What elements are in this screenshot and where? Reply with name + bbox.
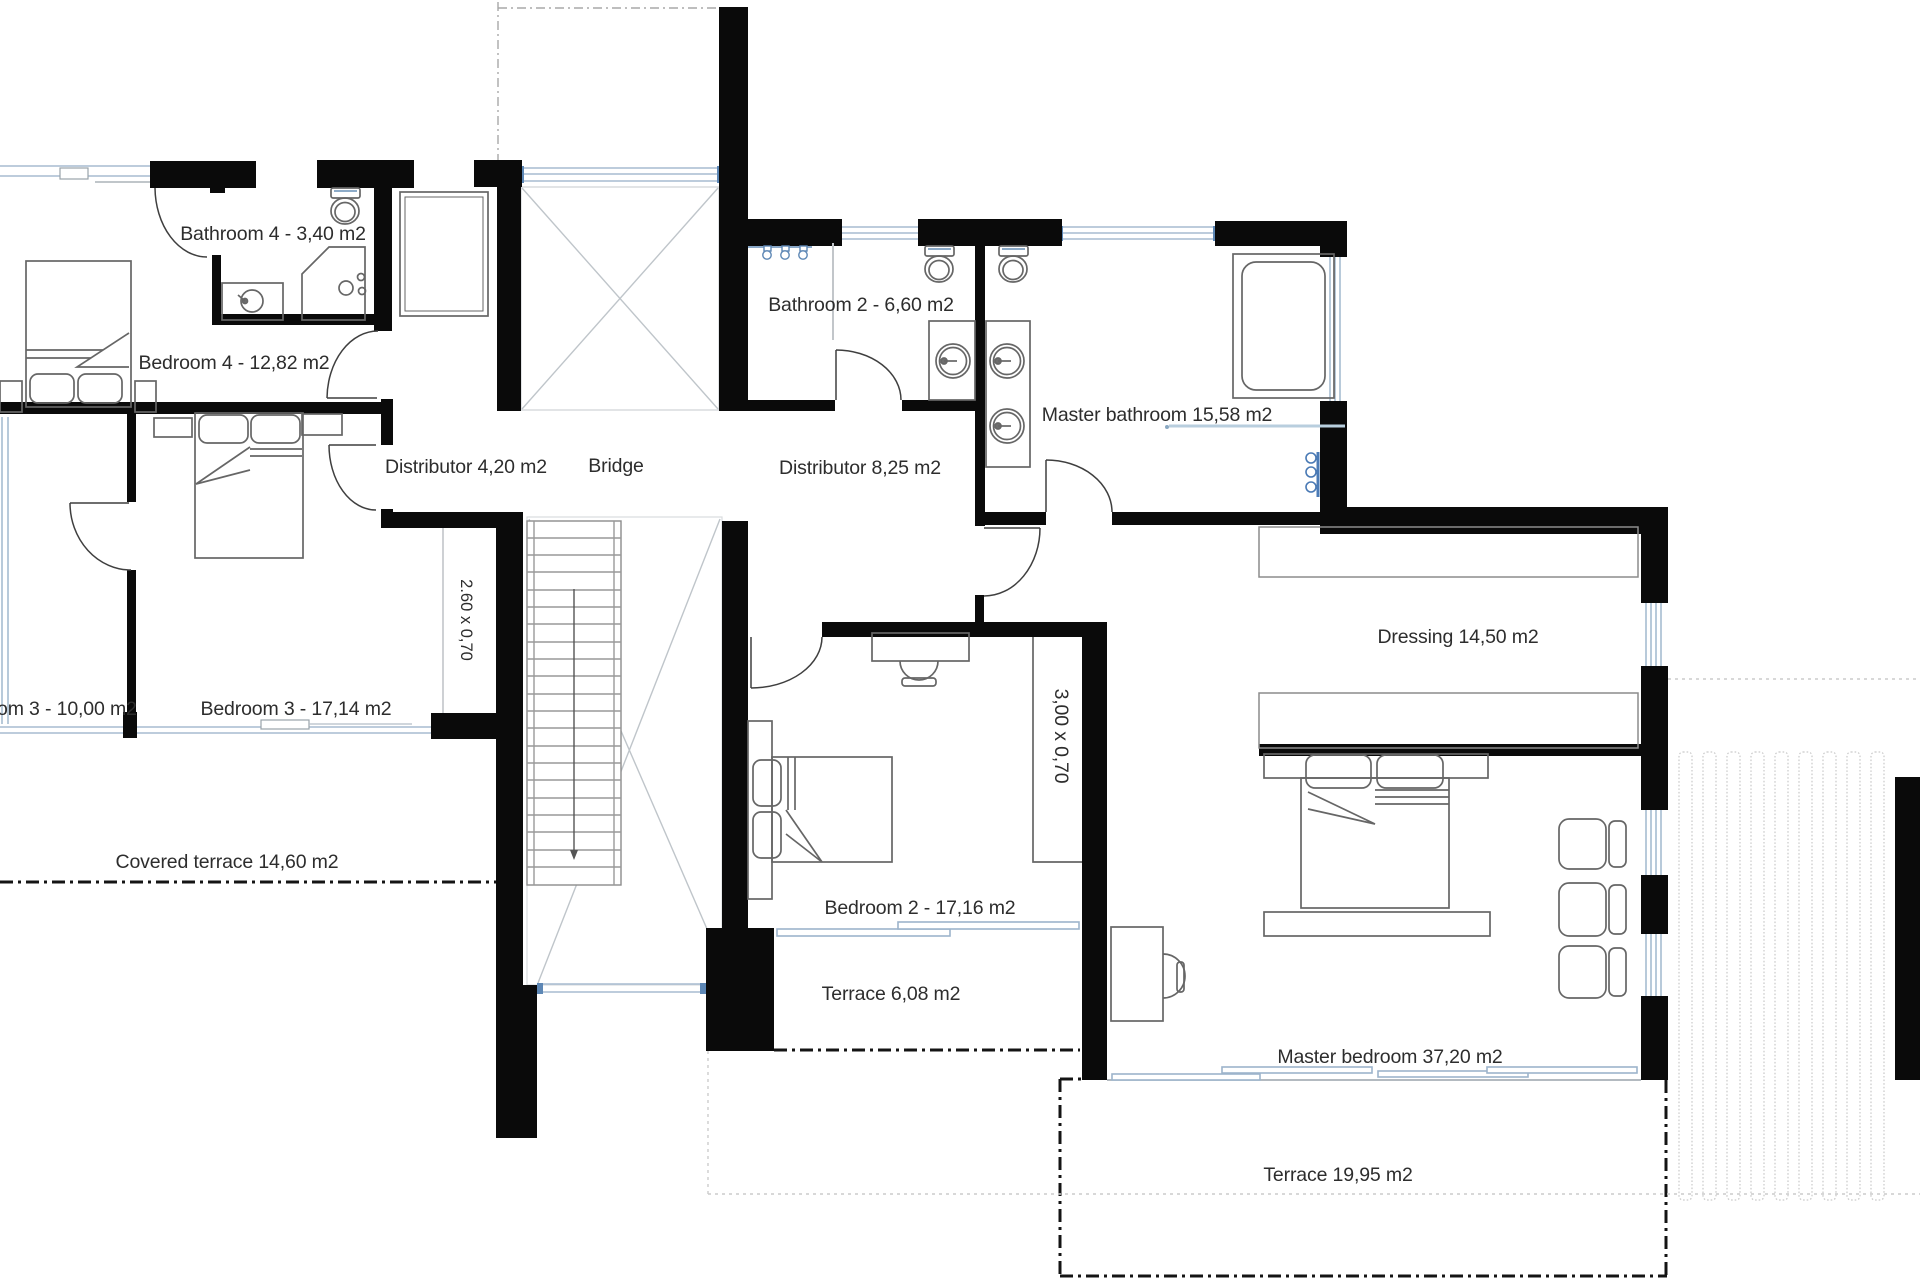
svg-text:om 3 - 10,00 m2: om 3 - 10,00 m2 [0,698,137,720]
svg-text:2.60 x 0,70: 2.60 x 0,70 [457,579,475,661]
svg-text:Bridge: Bridge [588,455,643,477]
svg-text:Distributor 8,25 m2: Distributor 8,25 m2 [779,457,941,479]
svg-text:Master bedroom 37,20 m2: Master bedroom 37,20 m2 [1277,1046,1502,1068]
svg-text:Terrace 6,08 m2: Terrace 6,08 m2 [822,983,961,1005]
svg-text:3,00 x 0,70: 3,00 x 0,70 [1050,689,1072,784]
svg-text:Distributor 4,20 m2: Distributor 4,20 m2 [385,456,547,478]
svg-text:Terrace 19,95 m2: Terrace 19,95 m2 [1263,1164,1412,1186]
svg-text:Bedroom 4 - 12,82 m2: Bedroom 4 - 12,82 m2 [138,352,329,374]
svg-text:Covered terrace 14,60 m2: Covered terrace 14,60 m2 [116,851,339,873]
svg-text:Master bathroom 15,58 m2: Master bathroom 15,58 m2 [1042,404,1273,426]
svg-text:Bedroom 2 - 17,16 m2: Bedroom 2 - 17,16 m2 [824,897,1015,919]
svg-text:Bathroom 4 - 3,40 m2: Bathroom 4 - 3,40 m2 [180,223,366,245]
svg-text:Bathroom 2 - 6,60 m2: Bathroom 2 - 6,60 m2 [768,294,954,316]
svg-text:Bedroom 3 - 17,14 m2: Bedroom 3 - 17,14 m2 [200,698,391,720]
svg-text:Dressing 14,50 m2: Dressing 14,50 m2 [1377,626,1538,648]
